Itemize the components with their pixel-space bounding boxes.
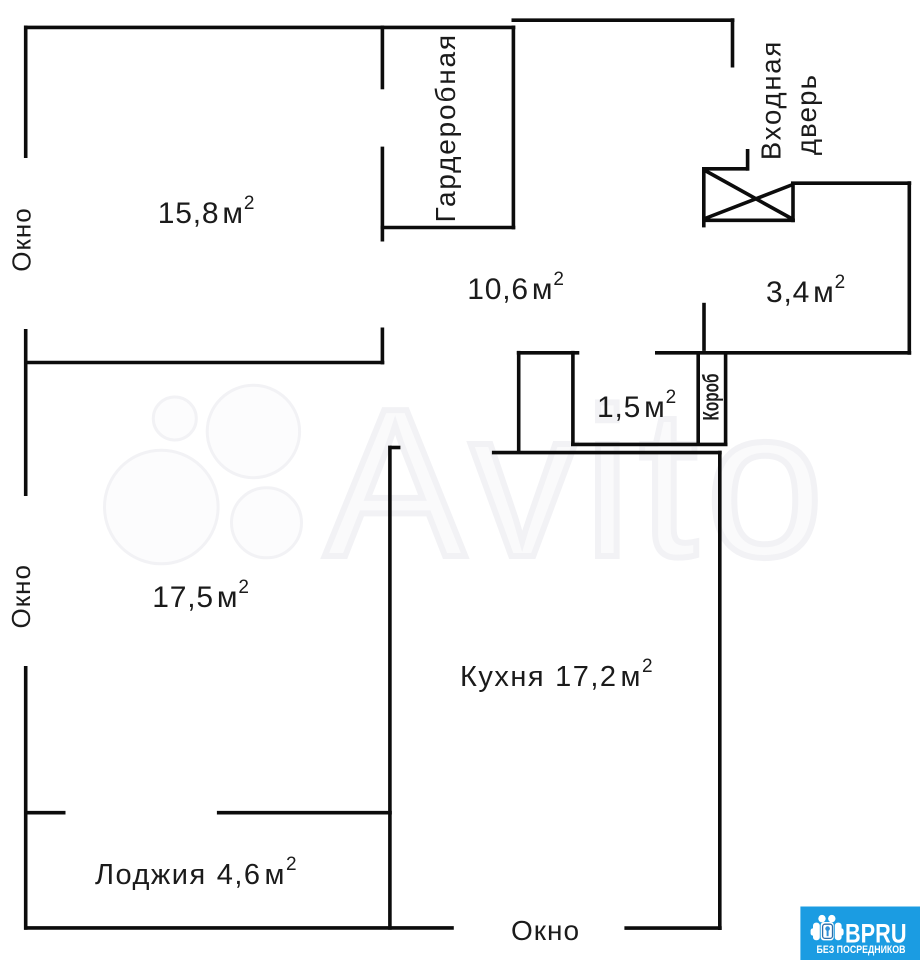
svg-text:Входная: Входная bbox=[756, 40, 787, 160]
svg-text:Окно: Окно bbox=[7, 207, 37, 271]
svg-text:3,4м2: 3,4м2 bbox=[766, 272, 846, 309]
svg-text:Лоджия4,6м2: Лоджия4,6м2 bbox=[95, 854, 298, 891]
svg-text:Короб: Короб bbox=[699, 374, 724, 421]
svg-text:Avito: Avito bbox=[324, 364, 831, 601]
svg-text:Кухня17,2м2: Кухня17,2м2 bbox=[460, 656, 654, 693]
svg-text:10,6м2: 10,6м2 bbox=[467, 269, 564, 306]
svg-text:БЕЗ ПОСРЕДНИКОВ: БЕЗ ПОСРЕДНИКОВ bbox=[817, 944, 906, 956]
svg-text:дверь: дверь bbox=[791, 74, 822, 155]
svg-text:17,5м2: 17,5м2 bbox=[152, 577, 249, 614]
svg-text:Окно: Окно bbox=[6, 564, 36, 628]
svg-text:15,8м2: 15,8м2 bbox=[158, 193, 255, 230]
svg-text:Гардеробная: Гардеробная bbox=[430, 33, 461, 222]
svg-text:Окно: Окно bbox=[511, 915, 580, 946]
svg-text:1,5м2: 1,5м2 bbox=[597, 387, 677, 424]
